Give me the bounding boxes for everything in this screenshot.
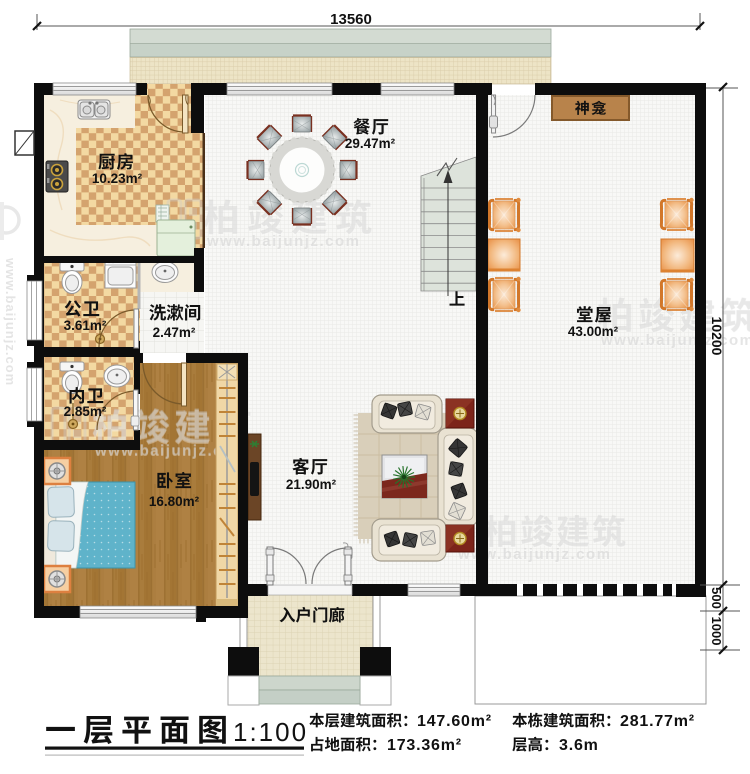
svg-text:281.77m²: 281.77m² [620, 713, 695, 730]
svg-text:2.85m²: 2.85m² [64, 404, 107, 419]
svg-text:13560: 13560 [330, 11, 372, 28]
svg-text:16.80m²: 16.80m² [149, 494, 200, 509]
svg-text:2.47m²: 2.47m² [153, 325, 196, 340]
svg-text:10200: 10200 [709, 317, 725, 356]
svg-text:29.47m²: 29.47m² [345, 136, 396, 151]
svg-text:43.00m²: 43.00m² [568, 324, 619, 339]
svg-text:www.baijunjz.com: www.baijunjz.com [3, 257, 18, 386]
svg-text:3.6m: 3.6m [559, 737, 599, 754]
svg-text:10.23m²: 10.23m² [92, 171, 143, 186]
svg-text:3.61m²: 3.61m² [64, 318, 107, 333]
svg-text:21.90m²: 21.90m² [286, 477, 337, 492]
svg-text:1000: 1000 [709, 617, 724, 646]
svg-text:500: 500 [709, 587, 724, 609]
svg-text:147.60m²: 147.60m² [417, 713, 492, 730]
svg-text:173.36m²: 173.36m² [387, 737, 462, 754]
svg-text:1:100: 1:100 [233, 717, 308, 747]
svg-text:www.baijunjz.com: www.baijunjz.com [600, 332, 750, 349]
svg-text:www.baijunjz.com: www.baijunjz.com [206, 233, 360, 250]
